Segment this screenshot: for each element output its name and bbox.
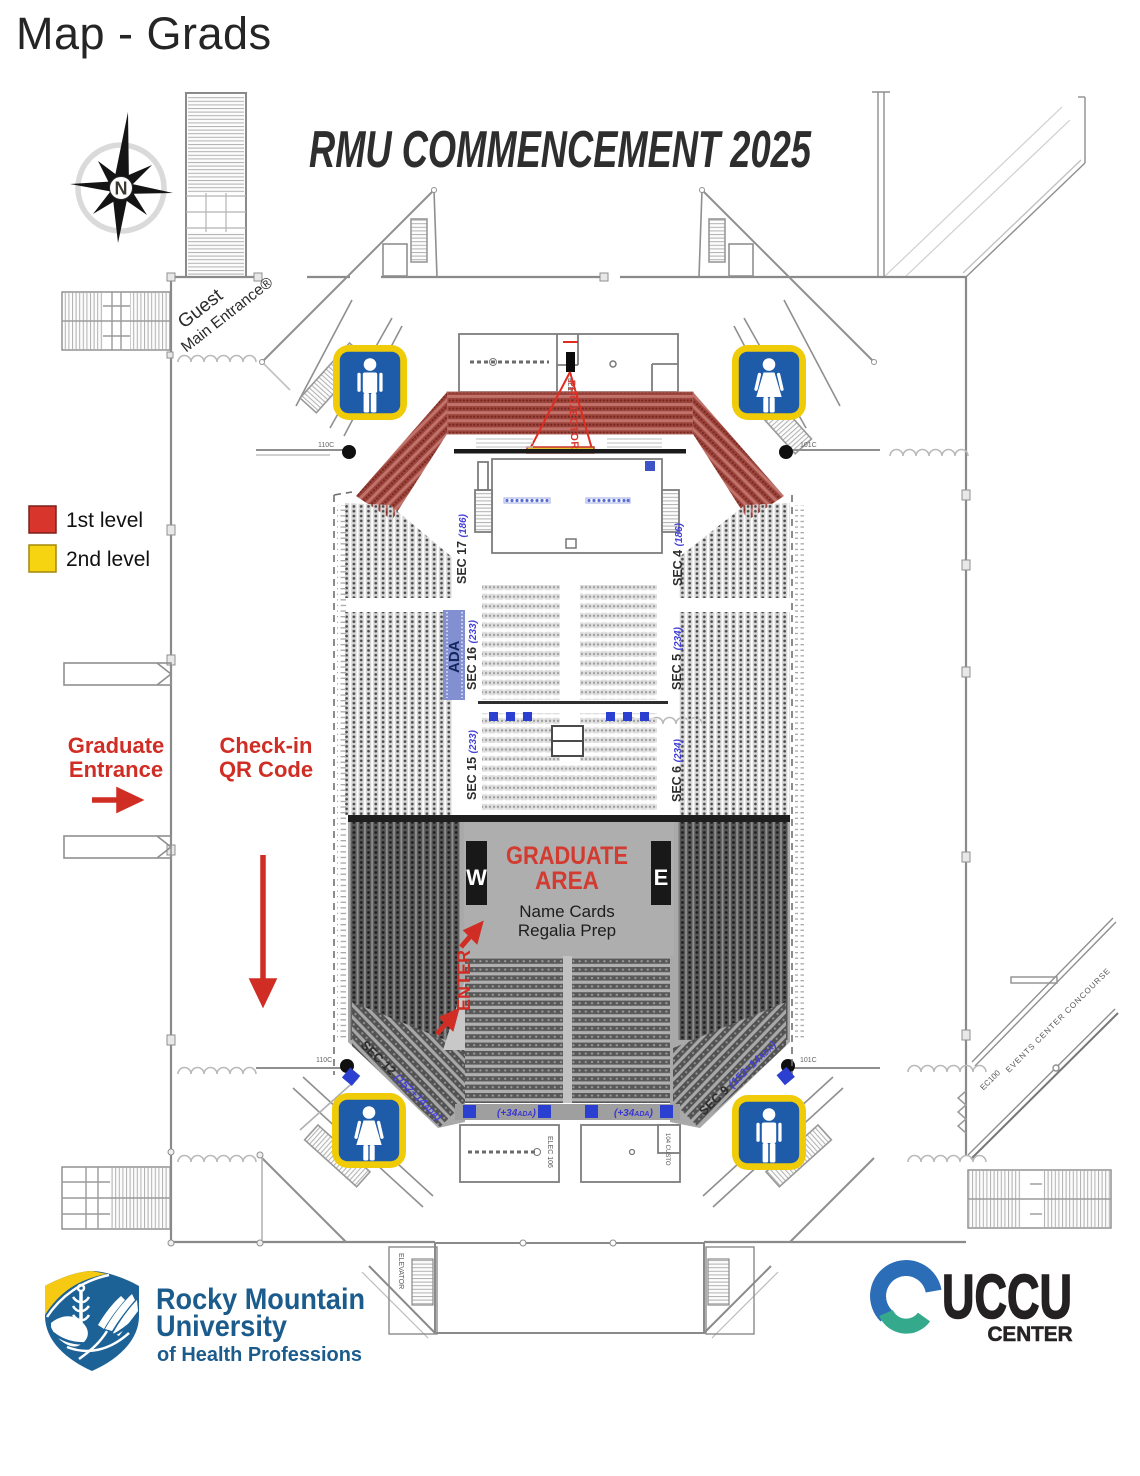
svg-text:SEC 4 (186): SEC 4 (186) — [671, 522, 685, 586]
svg-text:E: E — [654, 865, 669, 890]
svg-text:ADA: ADA — [446, 640, 463, 673]
svg-text:110C: 110C — [316, 1057, 332, 1064]
svg-text:W: W — [466, 865, 487, 890]
svg-text:AREA: AREA — [535, 867, 599, 895]
svg-text:Check-in: Check-in — [220, 733, 313, 758]
svg-text:CENTER: CENTER — [988, 1323, 1073, 1346]
svg-text:N: N — [115, 179, 128, 199]
svg-text:SEC 5 (234): SEC 5 (234) — [670, 626, 684, 690]
svg-text:University: University — [156, 1310, 287, 1343]
svg-text:1st level: 1st level — [66, 509, 143, 532]
svg-text:Entrance: Entrance — [69, 757, 163, 782]
svg-text:GRADUATE: GRADUATE — [506, 842, 628, 870]
svg-text:of Health Professions: of Health Professions — [157, 1344, 362, 1366]
svg-text:101C: 101C — [800, 442, 817, 449]
svg-text:UCCU: UCCU — [942, 1263, 1072, 1332]
svg-text:QR Code: QR Code — [219, 757, 313, 782]
svg-text:110C: 110C — [318, 442, 334, 449]
svg-text:104 CUSTO: 104 CUSTO — [664, 1133, 670, 1166]
svg-text:SEC 15 (233): SEC 15 (233) — [465, 729, 479, 800]
svg-text:ENTER: ENTER — [454, 950, 474, 1011]
svg-text:Regalia Prep: Regalia Prep — [518, 921, 616, 940]
svg-text:SEC 6 (234): SEC 6 (234) — [670, 738, 684, 802]
svg-text:SEC 17 (186): SEC 17 (186) — [455, 513, 469, 584]
svg-text:ELEVATOR: ELEVATOR — [397, 1253, 404, 1289]
svg-text:RMU COMMENCEMENT 2025: RMU COMMENCEMENT 2025 — [309, 121, 812, 179]
svg-text:SEC 16 (233): SEC 16 (233) — [465, 619, 479, 690]
svg-text:Name Cards: Name Cards — [519, 902, 614, 921]
svg-text:2nd level: 2nd level — [66, 548, 150, 571]
svg-text:Map - Grads: Map - Grads — [16, 8, 272, 59]
svg-text:101C: 101C — [800, 1057, 817, 1064]
svg-text:Graduate: Graduate — [68, 733, 165, 758]
svg-text:ELEC 106: ELEC 106 — [546, 1136, 553, 1168]
